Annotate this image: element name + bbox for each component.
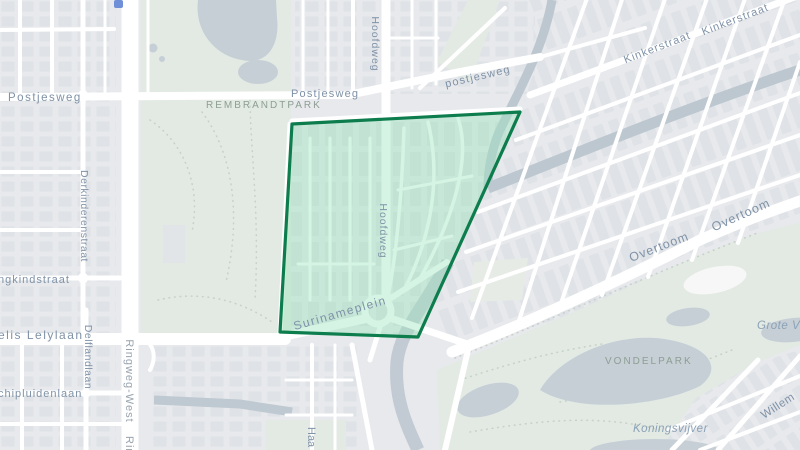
label-postjesweg-left: Postjesweg (8, 92, 82, 104)
map-viewport[interactable]: Postjesweg REMBRANDTPARK Postjesweg post… (0, 0, 800, 450)
label-lelylaan: elis Lelylaan (0, 328, 84, 342)
label-vondelpark: VONDELPARK (605, 356, 693, 367)
transit-marker-icon[interactable] (114, 0, 123, 8)
map-canvas[interactable]: Postjesweg REMBRANDTPARK Postjesweg post… (0, 0, 800, 450)
label-rembrandtpark: REMBRANDTPARK (206, 100, 322, 111)
label-haarlemmer: Haa (305, 427, 317, 448)
label-hoofdweg-top: Hoofdweg (369, 16, 381, 71)
label-hoofdweg-mid: Hoofdweg (377, 203, 389, 258)
label-grote-vijver: Grote Vij (757, 320, 800, 332)
label-ringweg-west-2: Rin (123, 436, 135, 450)
label-jongkindstraat: ngkindstraat (0, 274, 70, 286)
label-derkinderenstraat: Derkinderenstraat (78, 170, 90, 262)
park-building (163, 225, 185, 263)
label-delflandlaan: Delflandlaan (82, 325, 94, 389)
label-schipluidenlaan: chipluidenlaan (0, 388, 82, 400)
label-koningsvijver: Koningsvijver (633, 423, 709, 435)
label-ringweg-west: Ringweg-West (123, 339, 135, 422)
label-postjesweg-mid: Postjesweg (291, 88, 359, 100)
